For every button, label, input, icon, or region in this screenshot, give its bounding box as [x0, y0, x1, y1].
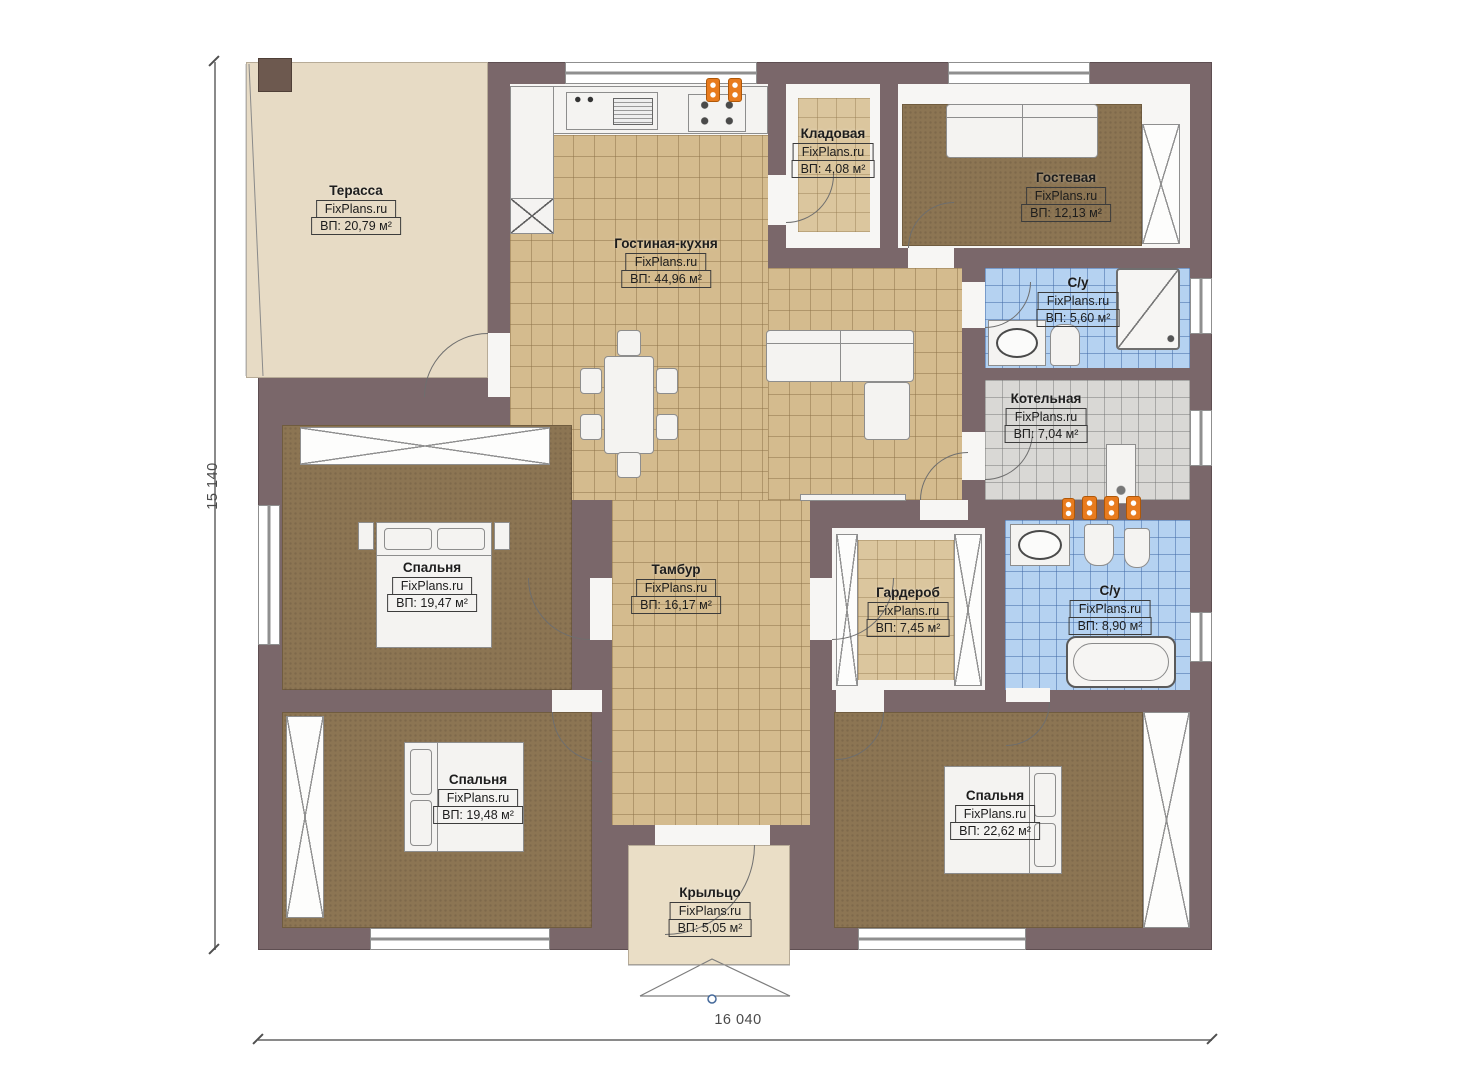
- room-area: ВП: 20,79 м²: [311, 217, 401, 235]
- room-area: ВП: 7,45 м²: [867, 619, 950, 637]
- room-name: Кладовая: [801, 126, 866, 141]
- brand-label: FixPlans.ru: [1038, 292, 1119, 310]
- room-area: ВП: 12,13 м²: [1021, 204, 1111, 222]
- room-label-bedroom3: Спальня FixPlans.ru ВП: 22,62 м²: [950, 788, 1040, 840]
- brand-label: FixPlans.ru: [793, 143, 874, 161]
- room-name: Спальня: [966, 788, 1024, 803]
- room-area: ВП: 44,96 м²: [621, 270, 711, 288]
- room-label-bedroom2: Спальня FixPlans.ru ВП: 19,48 м²: [433, 772, 523, 824]
- room-label-porch: Крыльцо FixPlans.ru ВП: 5,05 м²: [669, 885, 752, 937]
- room-area: ВП: 19,48 м²: [433, 806, 523, 824]
- room-name: Котельная: [1011, 391, 1082, 406]
- brand-label: FixPlans.ru: [438, 789, 519, 807]
- room-name: Гостиная-кухня: [614, 236, 717, 251]
- room-area: ВП: 22,62 м²: [950, 822, 1040, 840]
- room-label-hall: Тамбур FixPlans.ru ВП: 16,17 м²: [631, 562, 721, 614]
- room-area: ВП: 4,08 м²: [792, 160, 875, 178]
- brand-label: FixPlans.ru: [1070, 600, 1151, 618]
- room-name: Тамбур: [652, 562, 701, 577]
- room-area: ВП: 7,04 м²: [1005, 425, 1088, 443]
- room-area: ВП: 19,47 м²: [387, 594, 477, 612]
- room-name: С/у: [1099, 583, 1120, 598]
- brand-label: FixPlans.ru: [868, 602, 949, 620]
- room-name: Спальня: [449, 772, 507, 787]
- room-name: Гостевая: [1036, 170, 1096, 185]
- room-name: Крыльцо: [679, 885, 740, 900]
- room-area: ВП: 5,05 м²: [669, 919, 752, 937]
- room-label-storage: Кладовая FixPlans.ru ВП: 4,08 м²: [792, 126, 875, 178]
- room-label-terrace: Терасса FixPlans.ru ВП: 20,79 м²: [311, 183, 401, 235]
- room-label-bedroom1: Спальня FixPlans.ru ВП: 19,47 м²: [387, 560, 477, 612]
- brand-label: FixPlans.ru: [1006, 408, 1087, 426]
- brand-label: FixPlans.ru: [636, 579, 717, 597]
- room-name: Гардероб: [876, 585, 940, 600]
- brand-label: FixPlans.ru: [670, 902, 751, 920]
- room-label-living: Гостиная-кухня FixPlans.ru ВП: 44,96 м²: [614, 236, 717, 288]
- room-name: Терасса: [329, 183, 383, 198]
- brand-label: FixPlans.ru: [1026, 187, 1107, 205]
- room-label-bath2: С/у FixPlans.ru ВП: 8,90 м²: [1069, 583, 1152, 635]
- room-label-bath1: С/у FixPlans.ru ВП: 5,60 м²: [1037, 275, 1120, 327]
- room-name: Спальня: [403, 560, 461, 575]
- room-label-guest: Гостевая FixPlans.ru ВП: 12,13 м²: [1021, 170, 1111, 222]
- brand-label: FixPlans.ru: [316, 200, 397, 218]
- room-area: ВП: 8,90 м²: [1069, 617, 1152, 635]
- room-area: ВП: 5,60 м²: [1037, 309, 1120, 327]
- room-label-boiler: Котельная FixPlans.ru ВП: 7,04 м²: [1005, 391, 1088, 443]
- brand-label: FixPlans.ru: [626, 253, 707, 271]
- brand-label: FixPlans.ru: [392, 577, 473, 595]
- room-area: ВП: 16,17 м²: [631, 596, 721, 614]
- room-label-wardrobe: Гардероб FixPlans.ru ВП: 7,45 м²: [867, 585, 950, 637]
- brand-label: FixPlans.ru: [955, 805, 1036, 823]
- floor-plan-page: Терасса FixPlans.ru ВП: 20,79 м² Гостина…: [0, 0, 1474, 1080]
- room-name: С/у: [1067, 275, 1088, 290]
